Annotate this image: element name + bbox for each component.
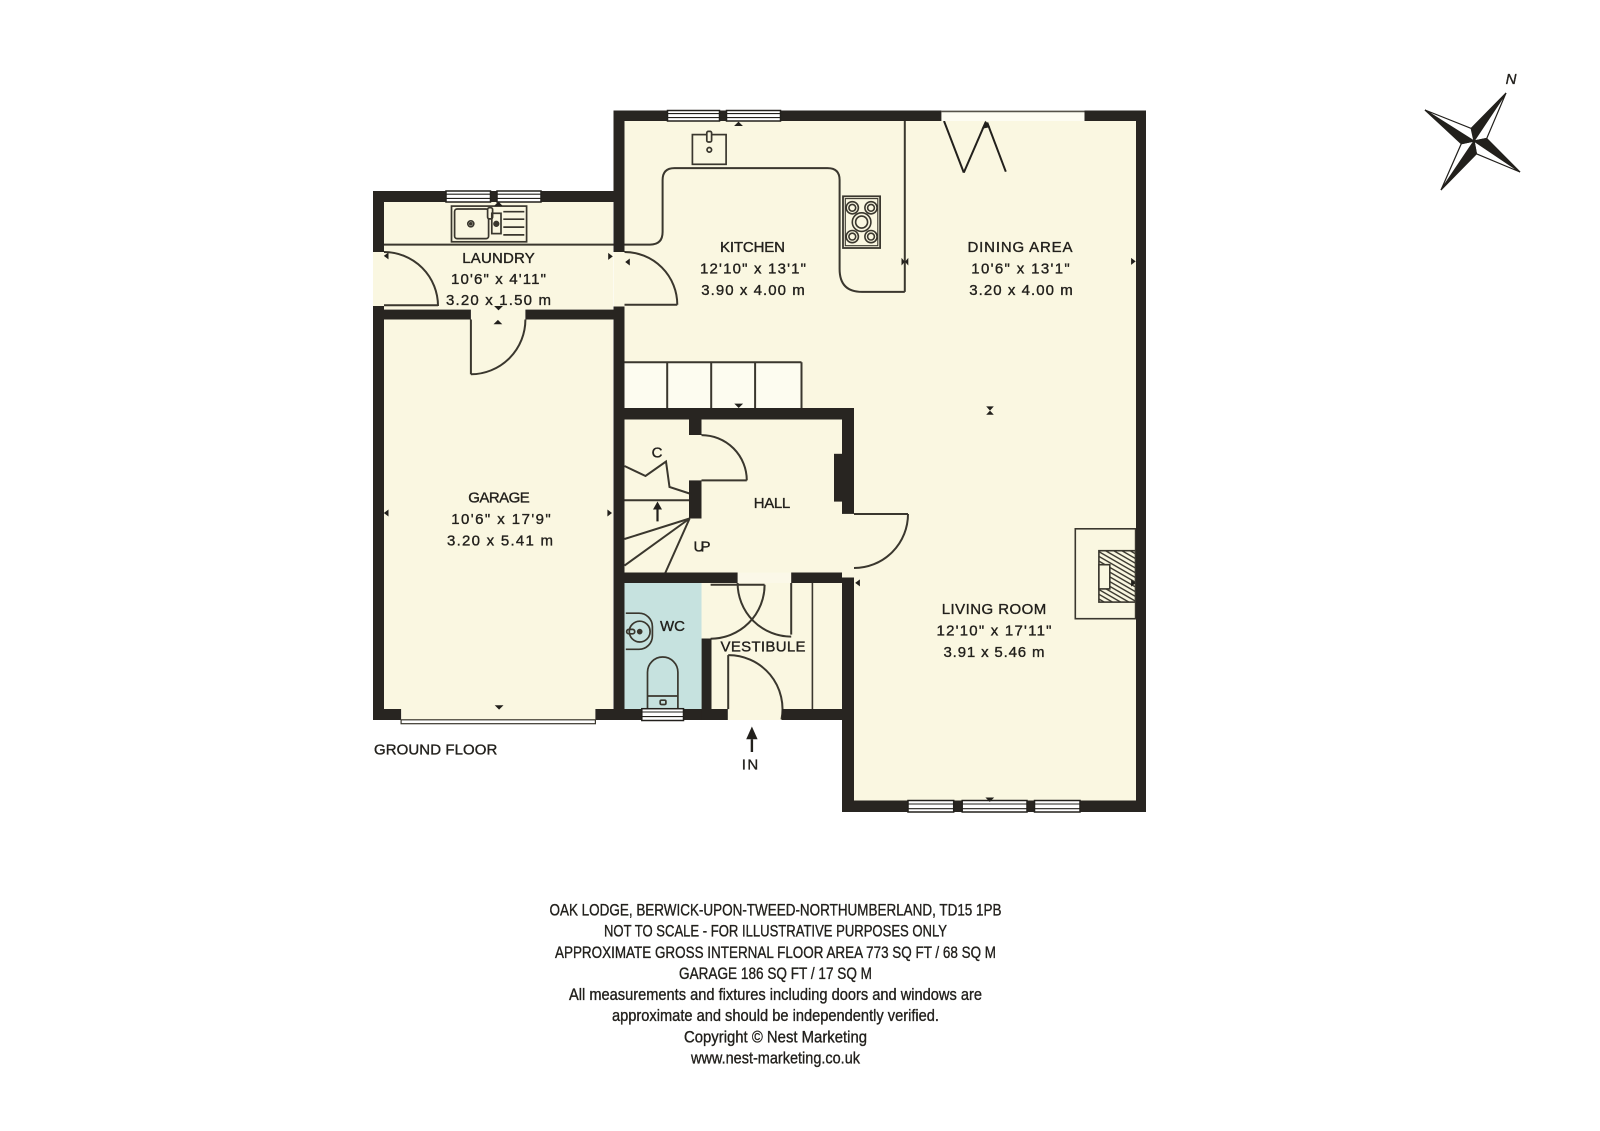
svg-text:IN: IN xyxy=(742,757,759,774)
svg-text:3.20 x 1.50 m: 3.20 x 1.50 m xyxy=(446,292,551,309)
svg-text:3.90 x 4.00 m: 3.90 x 4.00 m xyxy=(701,282,805,299)
svg-text:12'10" x 17'11": 12'10" x 17'11" xyxy=(937,623,1052,640)
svg-text:OAK LODGE, BERWICK-UPON-TWEED-: OAK LODGE, BERWICK-UPON-TWEED-NORTHUMBER… xyxy=(550,901,1002,920)
svg-text:APPROXIMATE GROSS INTERNAL FLO: APPROXIMATE GROSS INTERNAL FLOOR AREA 77… xyxy=(555,943,996,962)
svg-text:10'6" x 17'9": 10'6" x 17'9" xyxy=(451,511,551,528)
svg-text:NOT TO SCALE - FOR ILLUSTRATIV: NOT TO SCALE - FOR ILLUSTRATIVE PURPOSES… xyxy=(604,922,947,941)
svg-text:DINING AREA: DINING AREA xyxy=(968,239,1073,256)
svg-text:VESTIBULE: VESTIBULE xyxy=(721,639,806,656)
svg-text:LIVING ROOM: LIVING ROOM xyxy=(942,601,1047,618)
svg-text:10'6" x 13'1": 10'6" x 13'1" xyxy=(971,261,1070,278)
svg-text:LAUNDRY: LAUNDRY xyxy=(462,250,535,267)
svg-text:GARAGE: GARAGE xyxy=(468,490,530,507)
svg-text:WC: WC xyxy=(660,618,685,635)
svg-text:3.20 x 4.00 m: 3.20 x 4.00 m xyxy=(969,282,1073,299)
svg-text:GROUND FLOOR: GROUND FLOOR xyxy=(374,742,497,759)
svg-text:KITCHEN: KITCHEN xyxy=(720,239,785,256)
svg-text:All measurements and fixtures: All measurements and fixtures including … xyxy=(569,985,982,1004)
svg-text:C: C xyxy=(652,445,663,462)
svg-text:www.nest-marketing.co.uk: www.nest-marketing.co.uk xyxy=(690,1049,860,1068)
svg-text:GARAGE 186 SQ FT / 17 SQ M: GARAGE 186 SQ FT / 17 SQ M xyxy=(679,964,872,983)
svg-text:UP: UP xyxy=(694,539,711,556)
svg-text:10'6" x 4'11": 10'6" x 4'11" xyxy=(451,271,546,288)
svg-text:3.20 x 5.41 m: 3.20 x 5.41 m xyxy=(447,533,553,550)
svg-text:N: N xyxy=(1506,71,1517,88)
svg-text:approximate and should be inde: approximate and should be independently … xyxy=(612,1006,939,1025)
svg-text:Copyright © Nest Marketing: Copyright © Nest Marketing xyxy=(684,1027,867,1046)
svg-text:3.91 x 5.46 m: 3.91 x 5.46 m xyxy=(944,644,1045,661)
svg-text:HALL: HALL xyxy=(754,495,791,512)
